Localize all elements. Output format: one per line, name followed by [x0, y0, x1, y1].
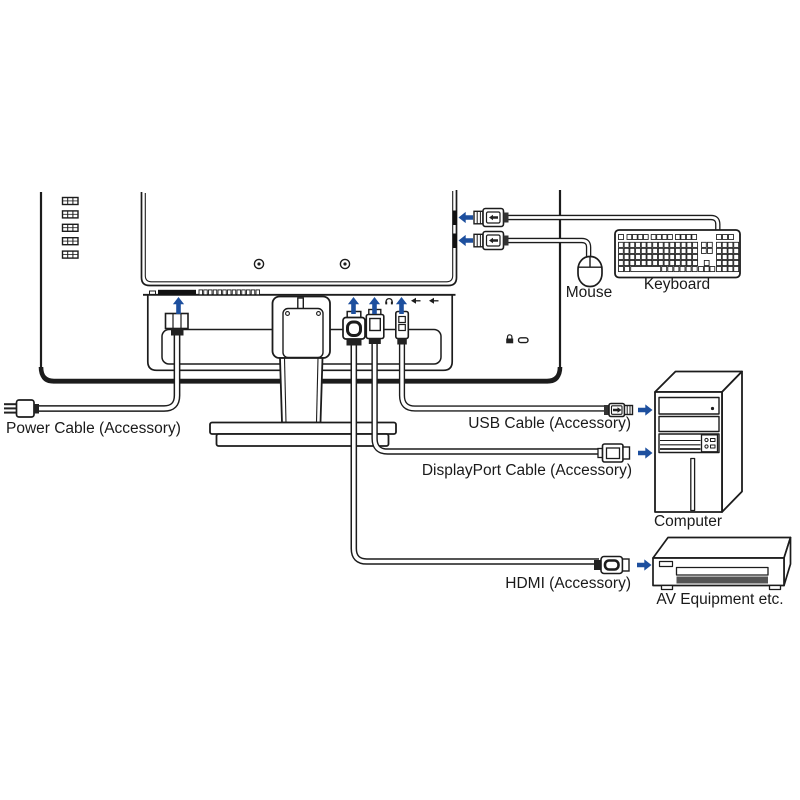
keyboard-key [676, 248, 681, 253]
keyboard-key [722, 260, 727, 265]
stand-base-front [217, 434, 389, 446]
keyboard-key [627, 235, 632, 240]
keyboard-key [636, 260, 641, 265]
av-front-panel-dark [677, 577, 769, 584]
keyboard-key [625, 267, 630, 272]
keyboard-key [717, 248, 722, 253]
keyboard-key [676, 254, 681, 259]
keyboard-key [631, 267, 661, 272]
av-equipment [653, 538, 791, 590]
keyboard [615, 230, 740, 278]
displayport-cable [375, 342, 600, 452]
right-arrow-icon [638, 447, 653, 458]
keyboard-key [668, 267, 673, 272]
vesa-screw-hole [340, 259, 349, 268]
keyboard-key [641, 242, 646, 247]
stand-screw [286, 312, 290, 316]
stand-hook-slot [298, 298, 304, 309]
keyboard-key [692, 267, 697, 272]
security-slot-icon [519, 338, 529, 343]
keyboard-key [662, 235, 667, 240]
usb-port-icon [711, 439, 716, 442]
keyboard-key [670, 254, 675, 259]
mouse-cable [506, 241, 589, 259]
mouse [578, 257, 602, 287]
keyboard-key [641, 248, 646, 253]
keyboard-key [681, 242, 686, 247]
keyboard-key [717, 254, 722, 259]
keyboard-key [647, 242, 652, 247]
keyboard-key [664, 248, 669, 253]
keyboard-key [728, 254, 733, 259]
keyboard-key [717, 242, 722, 247]
usb-cable-label: USB Cable (Accessory) [468, 415, 631, 432]
av-equipment-label: AV Equipment etc. [656, 591, 783, 608]
keyboard-key [647, 248, 652, 253]
keyboard-key [704, 260, 709, 265]
left-arrow-icon [459, 235, 474, 246]
keyboard-key [692, 235, 697, 240]
keyboard-key [728, 242, 733, 247]
vent-hole [251, 290, 255, 295]
av-disc-tray [677, 568, 769, 576]
usb-port-icon [705, 438, 708, 441]
keyboard-key [699, 267, 704, 272]
vent-hole [237, 290, 241, 295]
keyboard-label: Keyboard [644, 276, 710, 293]
keyboard-key [664, 254, 669, 259]
headphone-jack-icon [385, 299, 393, 305]
usb-port-icon [705, 445, 708, 448]
vesa-screw-hole [254, 259, 263, 268]
keyboard-key [687, 260, 692, 265]
keyboard-key [717, 235, 722, 240]
stand-column [280, 358, 323, 423]
keyboard-key [664, 260, 669, 265]
keyboard-key [722, 248, 727, 253]
kensington-lock-icon [506, 335, 513, 344]
keyboard-key [734, 267, 739, 272]
usb-connector-mouse [474, 232, 509, 250]
computer-power-led [711, 407, 714, 410]
keyboard-key [681, 254, 686, 259]
usb-downstream-port-icon [411, 298, 421, 304]
keyboard-key [658, 254, 663, 259]
keyboard-key [662, 267, 667, 272]
keyboard-key [723, 235, 728, 240]
keyboard-key [636, 248, 641, 253]
keyboard-key [658, 260, 663, 265]
keyboard-key [686, 267, 691, 272]
usb-b-connector [396, 312, 409, 345]
keyboard-key [681, 248, 686, 253]
keyboard-key [653, 254, 658, 259]
keyboard-key [704, 267, 709, 272]
keyboard-key [734, 254, 739, 259]
keyboard-key [624, 248, 629, 253]
keyboard-key [658, 248, 663, 253]
keyboard-key [670, 248, 675, 253]
right-arrow-icon [637, 559, 652, 570]
monitor-connection-diagram: Power Cable (Accessory) USB Cable (Acces… [0, 0, 800, 800]
keyboard-key [630, 254, 635, 259]
keyboard-key [693, 248, 698, 253]
power-plug [166, 314, 189, 336]
computer-drive-bay [659, 398, 719, 415]
displayport-cable-label: DisplayPort Cable (Accessory) [422, 462, 632, 479]
vent-hole [247, 290, 251, 295]
displayport-end-connector [598, 444, 630, 462]
keyboard-key [676, 260, 681, 265]
keyboard-key [681, 235, 686, 240]
stand-screw [317, 312, 321, 316]
computer-usb-panel [702, 435, 718, 452]
keyboard-key [657, 235, 662, 240]
computer-drive-bay [659, 417, 719, 432]
usb-port-icon [711, 445, 716, 448]
keyboard-key [668, 235, 673, 240]
up-arrow-icon [173, 297, 184, 314]
side-usb-port-slot [453, 234, 458, 249]
vent-hole [232, 290, 236, 295]
keyboard-key [717, 260, 722, 265]
vent-hole [223, 290, 227, 295]
side-usb-port-slot [453, 211, 458, 226]
av-power-button [660, 562, 673, 567]
keyboard-key [693, 260, 698, 265]
keyboard-key [722, 254, 727, 259]
vent-hole [256, 290, 260, 295]
keyboard-key [734, 260, 739, 265]
keyboard-key [710, 267, 715, 272]
keyboard-key [619, 248, 624, 253]
keyboard-key [728, 248, 733, 253]
keyboard-key [644, 235, 649, 240]
keyboard-key [675, 235, 680, 240]
keyboard-key [630, 248, 635, 253]
keyboard-key [619, 235, 624, 240]
keyboard-key [664, 242, 669, 247]
vent-hole [209, 290, 213, 295]
keyboard-key [687, 254, 692, 259]
keyboard-key [633, 235, 638, 240]
keyboard-key [717, 267, 722, 272]
computer-label: Computer [654, 513, 722, 530]
keyboard-key [619, 260, 624, 265]
keyboard-key [680, 267, 685, 272]
vent-hole [228, 290, 232, 295]
mouse-label: Mouse [566, 284, 613, 301]
keyboard-key [708, 242, 713, 247]
keyboard-key [734, 248, 739, 253]
stand-inner-plate [283, 309, 323, 358]
keyboard-key [636, 242, 641, 247]
power-cable-label: Power Cable (Accessory) [6, 420, 181, 437]
keyboard-key [638, 235, 643, 240]
keyboard-key [702, 242, 707, 247]
computer-tower [655, 372, 742, 513]
keyboard-key [647, 254, 652, 259]
hdmi-end-connector [594, 557, 629, 574]
keyboard-key [641, 260, 646, 265]
keyboard-key [641, 254, 646, 259]
keyboard-key [624, 254, 629, 259]
keyboard-key [624, 242, 629, 247]
stand-base-top [210, 423, 396, 435]
keyboard-key [651, 235, 656, 240]
back-panel-outline [142, 190, 457, 286]
keyboard-key [708, 248, 713, 253]
keyboard-key [619, 254, 624, 259]
right-arrow-icon [638, 404, 653, 415]
vent-hole [199, 290, 203, 295]
keyboard-key [729, 235, 734, 240]
usb-downstream-port-icon [429, 298, 439, 304]
keyboard-key [734, 242, 739, 247]
hdmi-connector [343, 312, 365, 346]
keyboard-key [687, 248, 692, 253]
keyboard-key [630, 260, 635, 265]
wall-plug [4, 400, 39, 417]
keyboard-key [728, 260, 733, 265]
keyboard-key [676, 242, 681, 247]
keyboard-key [722, 267, 727, 272]
vent-hole [204, 290, 208, 295]
vent-hole [218, 290, 222, 295]
back-panel-inner-line [145, 191, 452, 282]
connection-diagram-page: Power Cable (Accessory) USB Cable (Acces… [0, 0, 800, 800]
vent-hole [242, 290, 246, 295]
keyboard-key [686, 235, 691, 240]
left-arrow-icon [459, 212, 474, 223]
vent-row [199, 290, 260, 295]
usb-connector-keyboard [474, 209, 509, 227]
hdmi-cable-label: HDMI (Accessory) [505, 575, 631, 592]
av-foot [770, 586, 781, 590]
keyboard-key [687, 242, 692, 247]
vent-hole [213, 290, 217, 295]
keyboard-key [647, 260, 652, 265]
side-vent-slots [63, 198, 79, 259]
keyboard-key [653, 248, 658, 253]
keyboard-key [630, 242, 635, 247]
keyboard-key [728, 267, 733, 272]
computer-seam [691, 459, 695, 511]
keyboard-key [722, 242, 727, 247]
keyboard-key [670, 242, 675, 247]
keyboard-key [702, 248, 707, 253]
usb-cable [402, 342, 606, 409]
keyboard-key [681, 260, 686, 265]
av-foot [662, 586, 673, 590]
keyboard-key [674, 267, 679, 272]
keyboard-key [619, 242, 624, 247]
keyboard-key [653, 260, 658, 265]
keyboard-key [619, 267, 624, 272]
av-top-face [653, 538, 791, 559]
keyboard-key [636, 254, 641, 259]
displayport-connector [366, 310, 384, 345]
keyboard-key [653, 242, 658, 247]
keyboard-key [693, 242, 698, 247]
computer-right-face [722, 372, 742, 513]
keyboard-key [670, 260, 675, 265]
keyboard-key [658, 242, 663, 247]
keyboard-key [624, 260, 629, 265]
power-inlet-bar [158, 290, 196, 295]
keyboard-key [693, 254, 698, 259]
